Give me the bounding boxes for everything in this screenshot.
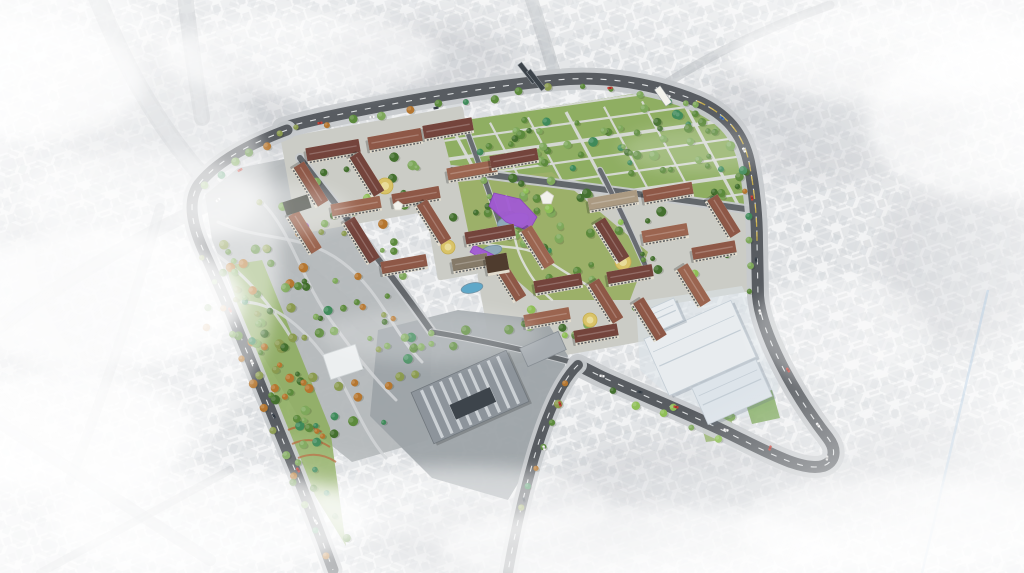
masterplan-aerial-svg bbox=[0, 0, 1024, 573]
white-vignette bbox=[0, 0, 1024, 573]
masterplan-render-stage bbox=[0, 0, 1024, 573]
